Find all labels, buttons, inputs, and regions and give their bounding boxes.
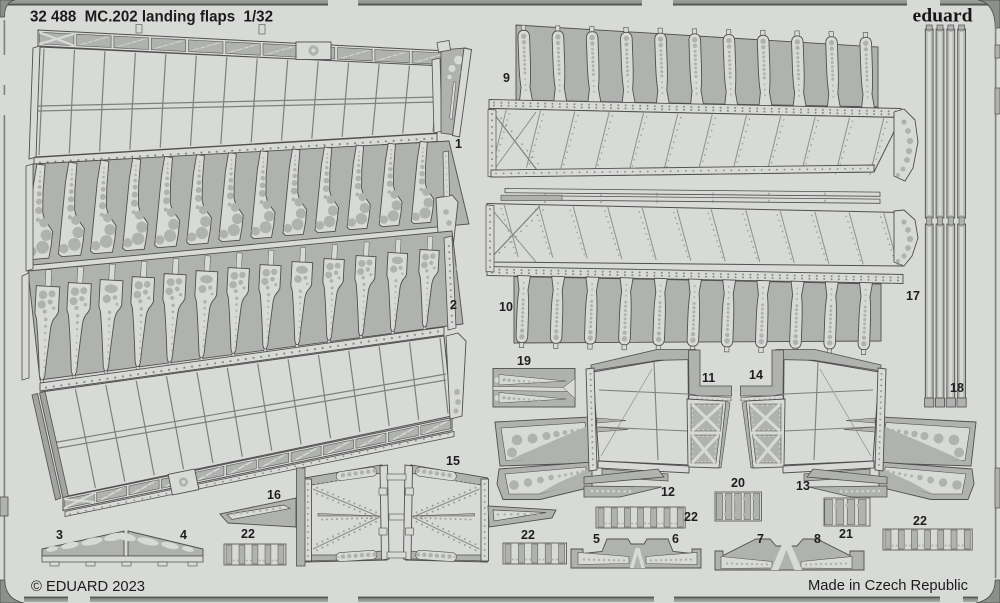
svg-text:15: 15: [446, 454, 460, 468]
svg-text:21: 21: [839, 527, 853, 541]
svg-text:3: 3: [56, 528, 63, 542]
svg-text:11: 11: [702, 371, 715, 385]
svg-text:22: 22: [241, 527, 255, 541]
svg-text:1: 1: [455, 137, 462, 151]
svg-text:16: 16: [267, 488, 281, 502]
svg-text:22: 22: [521, 528, 535, 542]
svg-text:22: 22: [684, 510, 698, 524]
svg-text:17: 17: [906, 289, 920, 303]
svg-text:19: 19: [517, 354, 531, 368]
svg-text:14: 14: [749, 368, 763, 382]
svg-text:22: 22: [913, 514, 927, 528]
svg-text:12: 12: [661, 485, 675, 499]
svg-text:32 488 MC.202 landing flaps: 32 488 MC.202 landing flaps 1/32: [30, 9, 273, 26]
svg-text:9: 9: [503, 71, 510, 85]
svg-text:7: 7: [757, 532, 764, 546]
svg-text:13: 13: [796, 479, 810, 493]
svg-text:4: 4: [180, 528, 187, 542]
svg-text:Made in Czech Republic: Made in Czech Republic: [808, 578, 968, 594]
svg-text:© EDUARD 2023: © EDUARD 2023: [31, 579, 145, 595]
svg-text:18: 18: [950, 381, 964, 395]
svg-text:eduard: eduard: [913, 7, 974, 27]
svg-text:10: 10: [499, 300, 513, 314]
svg-text:6: 6: [672, 532, 679, 546]
svg-text:20: 20: [731, 476, 745, 490]
svg-text:2: 2: [450, 298, 457, 312]
svg-text:8: 8: [814, 532, 821, 546]
svg-text:5: 5: [593, 532, 600, 546]
